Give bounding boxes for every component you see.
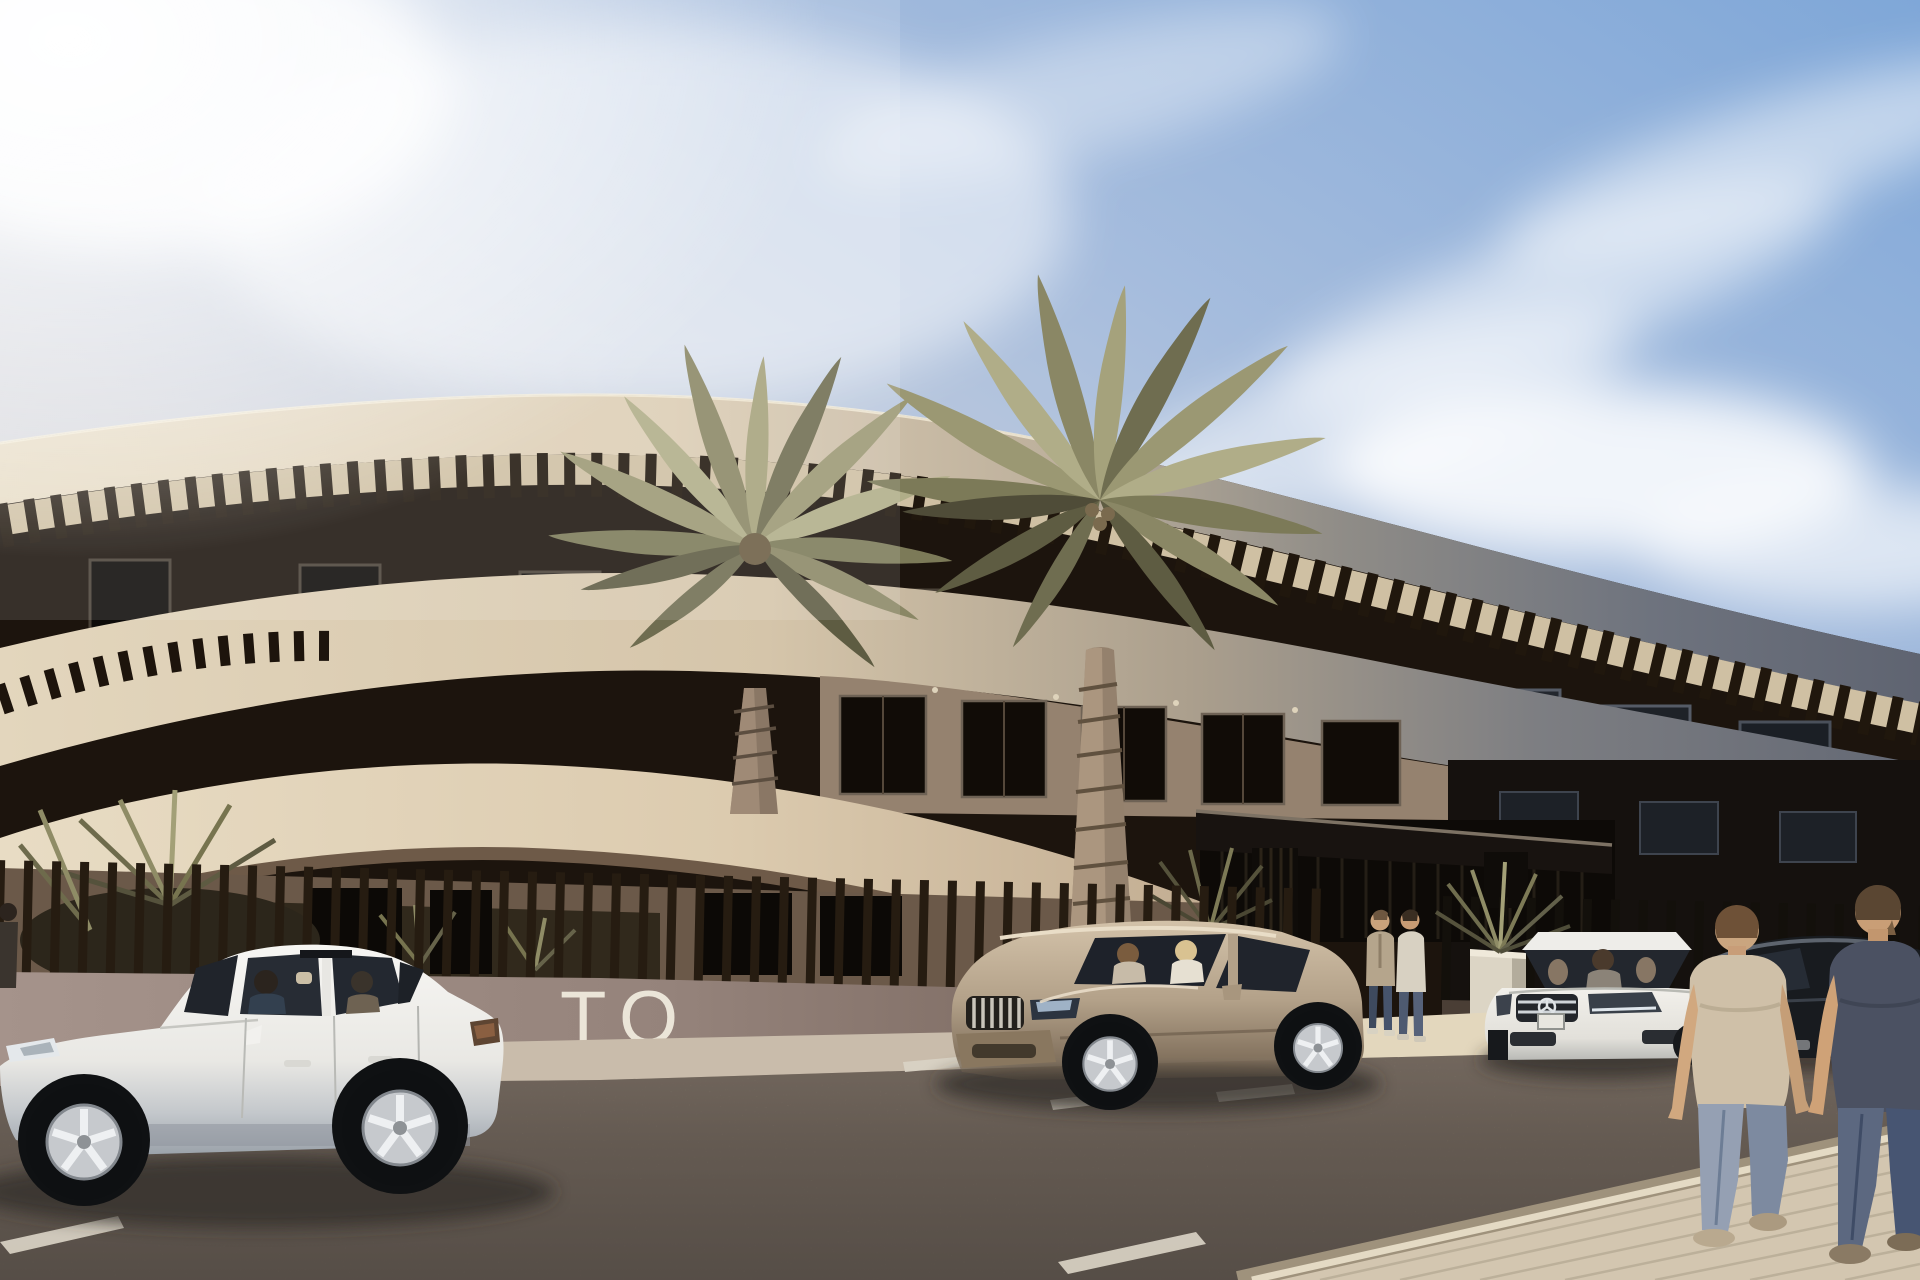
merc-roof [1522, 932, 1692, 950]
sedan-b-pillar [322, 952, 331, 1016]
scene-canvas: TO [0, 0, 1920, 1280]
sedan-sunroof [300, 950, 352, 958]
merc-license-plate [1538, 1014, 1564, 1029]
suv-mirror [1222, 984, 1242, 1000]
sedan-front-wheel [26, 1084, 142, 1200]
haze-overlay [0, 0, 900, 620]
suv-rear-wheel [1280, 1010, 1355, 1085]
suv-a-pillar [1228, 934, 1238, 990]
suv-front-wheel [1068, 1022, 1152, 1106]
sedan-rear-wheel [342, 1070, 458, 1186]
merc-left-wheel [1488, 1030, 1508, 1060]
beige-shoe-left [1693, 1229, 1735, 1247]
slate-shirt [1829, 941, 1920, 1112]
slate-shoe-left [1829, 1244, 1871, 1264]
render-image: TO [0, 0, 1920, 1280]
figure-left-edge [0, 903, 18, 988]
beige-shirt [1689, 955, 1790, 1108]
beige-shoe-right [1749, 1213, 1787, 1231]
